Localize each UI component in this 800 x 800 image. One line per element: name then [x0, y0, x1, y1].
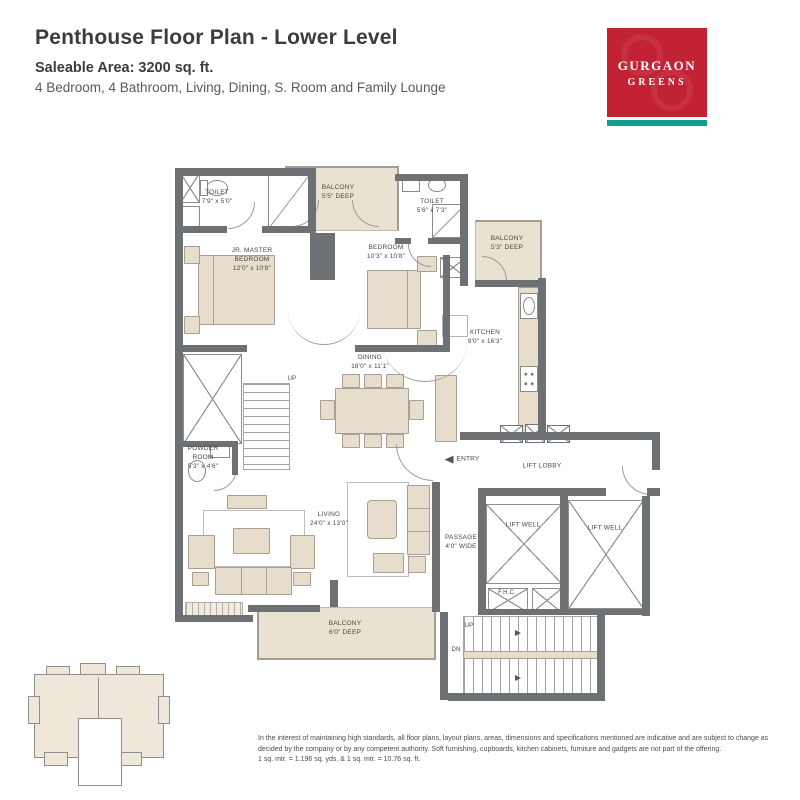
sink-icon — [402, 180, 420, 192]
room-label-living: LIVING 24'0" x 13'0" — [310, 511, 348, 529]
wall-segment — [432, 482, 440, 612]
room-label-toilet-top-left: TOILET 7'9" x 5'0" — [202, 189, 233, 207]
coffee-table — [233, 528, 270, 554]
logo-red-box: GURGAON GREENS — [607, 28, 707, 117]
side-table — [408, 556, 426, 573]
kitchen-cabinet-strip — [435, 375, 457, 442]
room-name: TOILET — [202, 189, 233, 198]
lift-well-2-box — [568, 500, 644, 609]
floor-plan: TOILET 7'9" x 5'0" BALCONY 5'5" DEEP TOI… — [170, 160, 670, 720]
wall-segment — [248, 605, 320, 612]
open-shaft-box — [183, 354, 242, 444]
disclaimer-text: In the interest of maintaining high stan… — [258, 735, 768, 753]
room-label-jr-master: JR. MASTER BEDROOM 12'0" x 10'8" — [232, 247, 273, 273]
entry-arrow-icon — [445, 456, 454, 464]
room-label-lift-well-1: LIFT WELL — [506, 522, 541, 531]
key-plan-highlight-unit — [78, 718, 122, 786]
ottoman — [373, 553, 404, 573]
room-dim: 10'3" x 10'8" — [367, 253, 405, 262]
room-label-balcony-bottom: BALCONY 6'0" DEEP — [329, 620, 361, 638]
room-label-lift-well-2: LIFT WELL — [588, 525, 623, 534]
room-label-balcony-top: BALCONY 5'5" DEEP — [322, 184, 354, 202]
wall-segment — [232, 441, 238, 475]
dining-arch — [288, 310, 360, 345]
kitchen-sink-basin — [523, 297, 535, 315]
room-name: TOILET — [417, 198, 448, 207]
dining-chair — [320, 400, 335, 420]
page-title: Penthouse Floor Plan - Lower Level — [35, 26, 575, 50]
stairs-direction: UP — [465, 622, 474, 630]
room-dim: 5'6" x 7'3" — [417, 207, 448, 216]
stair-dn-arrow-icon — [515, 675, 521, 681]
sofa-cushion-line — [408, 531, 429, 532]
key-plan-wing — [28, 696, 40, 724]
disclaimer-conversion: 1 sq. mtr. = 1.196 sq. yds. & 1 sq. mtr.… — [258, 755, 774, 766]
room-name: PASSAGE — [445, 534, 477, 543]
bedside-table — [184, 246, 200, 264]
wall-segment — [395, 174, 468, 181]
lift-well-1-box — [486, 504, 562, 584]
room-name: BEDROOM — [232, 256, 273, 265]
stairs-direction: DN — [451, 646, 460, 654]
sofa-cushion-line — [408, 508, 429, 509]
stair-landing — [463, 651, 599, 659]
wall-segment — [560, 496, 568, 613]
logo-name-line1: GURGAON — [618, 58, 696, 74]
room-name: BALCONY — [491, 235, 523, 244]
room-name: DINING — [351, 354, 389, 363]
room-dim: 24'0" x 13'0" — [310, 520, 348, 529]
wall-segment — [538, 278, 546, 440]
room-dim: 7'9" x 5'0" — [202, 198, 233, 207]
wall-segment — [308, 168, 316, 233]
saleable-area: Saleable Area: 3200 sq. ft. — [35, 60, 575, 76]
bed-pillow-line — [407, 271, 408, 328]
wall-segment — [175, 168, 315, 176]
bedside-table — [184, 316, 200, 334]
wall-segment — [647, 488, 660, 496]
disclaimer: In the interest of maintaining high stan… — [258, 734, 774, 766]
header: Penthouse Floor Plan - Lower Level Salea… — [35, 26, 575, 95]
room-dim: 5'3" DEEP — [491, 244, 523, 253]
room-label-kitchen: KITCHEN 9'0" x 16'3" — [468, 329, 502, 347]
dining-chair — [409, 400, 424, 420]
room-label-balcony-right: BALCONY 5'3" DEEP — [491, 235, 523, 253]
stair-up-arrow-icon — [515, 630, 521, 636]
wall-segment — [175, 168, 183, 622]
label-up-external: UP — [465, 622, 474, 630]
room-name: JR. MASTER — [232, 247, 273, 256]
room-dim: 5'5" DEEP — [322, 193, 354, 202]
room-name: ROOM — [188, 454, 219, 463]
wall-segment — [460, 432, 660, 440]
shaft-box — [180, 173, 200, 203]
wall-segment — [330, 580, 338, 607]
side-table — [192, 572, 209, 586]
armchair — [290, 535, 315, 569]
armchair — [188, 535, 215, 569]
sofa-three-seat — [215, 567, 292, 595]
room-name: POWDER — [188, 445, 219, 454]
sofa-cushion-line — [266, 568, 267, 594]
room-label-bedroom: BEDROOM 10'3" x 10'8" — [367, 244, 405, 262]
room-dim: 6'0" DEEP — [329, 629, 361, 638]
side-table — [293, 572, 311, 586]
wall-segment — [355, 345, 450, 352]
key-plan — [28, 658, 168, 792]
entry-label: ENTRY — [445, 456, 480, 465]
logo-teal-stripe — [607, 120, 707, 126]
label-dn-external: DN — [451, 646, 460, 654]
wall-segment — [597, 612, 605, 700]
dining-chair — [386, 374, 404, 388]
sofa-sectional — [407, 485, 430, 555]
bed — [367, 270, 421, 329]
dining-chair — [342, 374, 360, 388]
wall-segment — [175, 615, 253, 622]
room-dim: 4'0" WIDE — [445, 543, 477, 552]
wall-segment — [478, 609, 650, 615]
room-name: LIFT WELL — [506, 522, 541, 531]
room-dim: 9'0" x 16'3" — [468, 338, 502, 347]
wall-segment — [428, 238, 468, 244]
logo-name-line2: GREENS — [627, 77, 686, 88]
plan-description: 4 Bedroom, 4 Bathroom, Living, Dining, S… — [35, 80, 575, 95]
kitchen-hob — [520, 366, 538, 392]
entry-door-arc — [396, 444, 433, 481]
brand-logo: GURGAON GREENS — [607, 28, 707, 126]
stairs-direction: UP — [288, 375, 297, 383]
room-label-powder-room: POWDER ROOM 5'3" x 4'6" — [188, 445, 219, 471]
room-name: BEDROOM — [367, 244, 405, 253]
wall-segment — [395, 238, 411, 244]
room-label-fhc: F.H.C. — [498, 589, 516, 597]
room-label-passage: PASSAGE 4'0" WIDE — [445, 534, 477, 552]
dining-chair — [342, 434, 360, 448]
floor-plan-page: { "header": { "title": "Penthouse Floor … — [0, 0, 800, 800]
wall-segment — [478, 488, 606, 496]
console-table — [227, 495, 267, 509]
room-label-dining: DINING 18'0" x 11'1" — [351, 354, 389, 372]
room-name: BALCONY — [322, 184, 354, 193]
dining-chair — [364, 434, 382, 448]
internal-staircase — [243, 383, 290, 470]
wall-segment — [440, 612, 448, 700]
room-name: F.H.C. — [498, 589, 516, 597]
duct-block — [310, 233, 335, 280]
wall-segment — [475, 280, 538, 287]
entry-text: ENTRY — [457, 456, 480, 465]
wall-segment — [448, 693, 605, 701]
key-plan-wing — [44, 752, 68, 766]
room-dim: 12'0" x 10'8" — [232, 264, 273, 273]
wall-segment — [642, 496, 650, 616]
door-arc — [408, 244, 431, 267]
wall-segment — [175, 226, 227, 233]
room-name: LIFT WELL — [588, 525, 623, 534]
dining-table — [335, 388, 409, 434]
daybed — [367, 500, 397, 539]
room-label-toilet-top-right: TOILET 5'6" x 7'3" — [417, 198, 448, 216]
wall-segment — [460, 174, 468, 286]
room-name: BALCONY — [329, 620, 361, 629]
bed-pillow-line — [213, 256, 214, 324]
room-name: LIVING — [310, 511, 348, 520]
label-up-internal: UP — [288, 375, 297, 383]
wall-segment — [443, 255, 450, 352]
room-name: KITCHEN — [468, 329, 502, 338]
room-dim: 5'3" x 4'6" — [188, 462, 219, 471]
wall-segment — [478, 496, 486, 613]
key-plan-divider-line — [98, 678, 99, 722]
sofa-cushion-line — [241, 568, 242, 594]
dining-chair — [364, 374, 382, 388]
wall-segment — [175, 345, 247, 352]
room-dim: 18'0" x 11'1" — [351, 363, 389, 372]
wall-segment — [652, 440, 660, 470]
room-name: LIFT LOBBY — [523, 463, 562, 472]
key-plan-wing — [158, 696, 170, 724]
room-label-lift-lobby: LIFT LOBBY — [523, 463, 562, 472]
